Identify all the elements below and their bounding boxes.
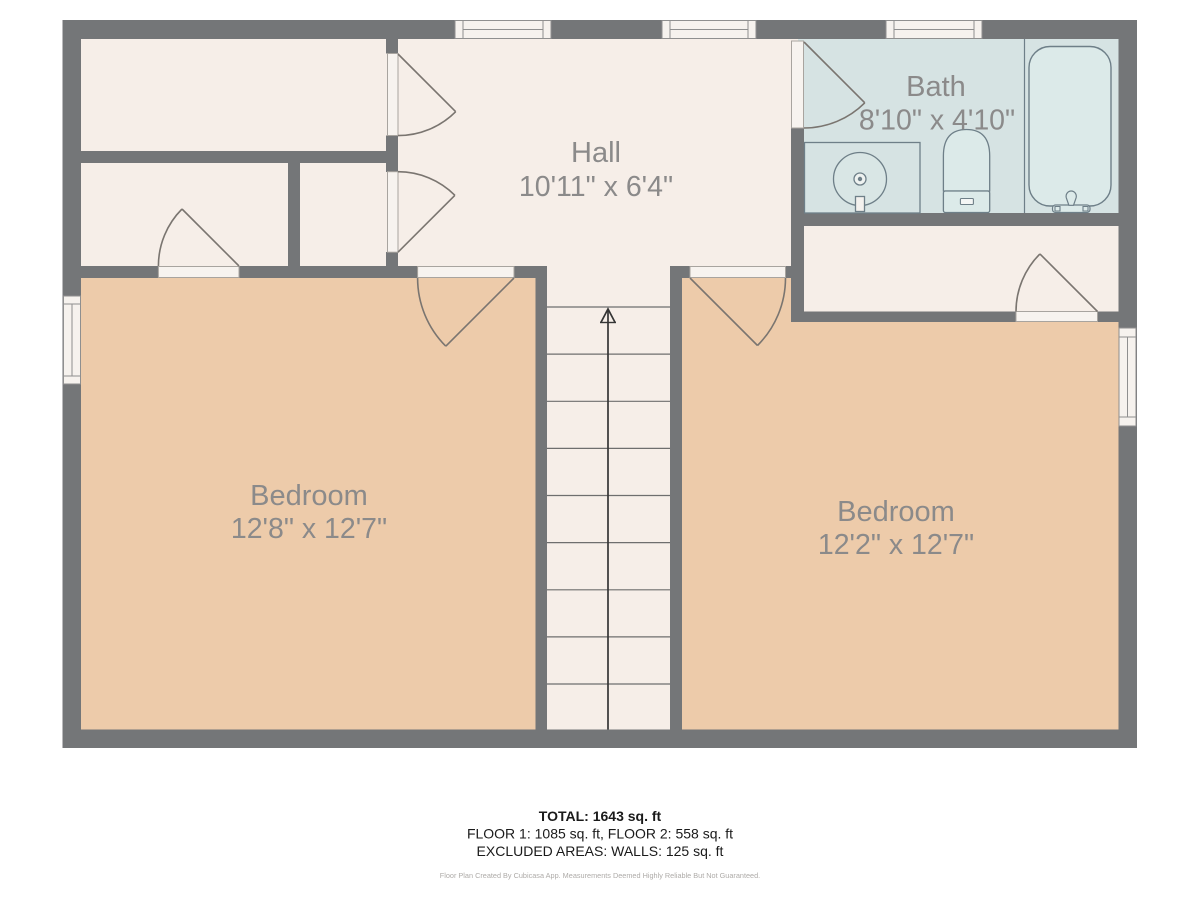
svg-text:10'11" x 6'4": 10'11" x 6'4" bbox=[519, 171, 673, 203]
svg-text:12'2" x 12'7": 12'2" x 12'7" bbox=[818, 529, 974, 561]
svg-text:8'10" x 4'10": 8'10" x 4'10" bbox=[859, 105, 1015, 137]
svg-text:EXCLUDED AREAS: WALLS: 125 sq.: EXCLUDED AREAS: WALLS: 125 sq. ft bbox=[477, 843, 724, 859]
svg-text:TOTAL: 1643 sq. ft: TOTAL: 1643 sq. ft bbox=[539, 808, 662, 824]
svg-text:Floor Plan Created By Cubicasa: Floor Plan Created By Cubicasa App. Meas… bbox=[440, 871, 760, 880]
svg-text:Bath: Bath bbox=[906, 71, 966, 103]
svg-text:Bedroom: Bedroom bbox=[837, 496, 955, 528]
svg-text:FLOOR 1: 1085 sq. ft, FLOOR 2:: FLOOR 1: 1085 sq. ft, FLOOR 2: 558 sq. f… bbox=[467, 826, 733, 842]
svg-text:12'8" x 12'7": 12'8" x 12'7" bbox=[231, 513, 387, 545]
svg-text:Bedroom: Bedroom bbox=[250, 480, 368, 512]
svg-text:Hall: Hall bbox=[571, 137, 621, 169]
